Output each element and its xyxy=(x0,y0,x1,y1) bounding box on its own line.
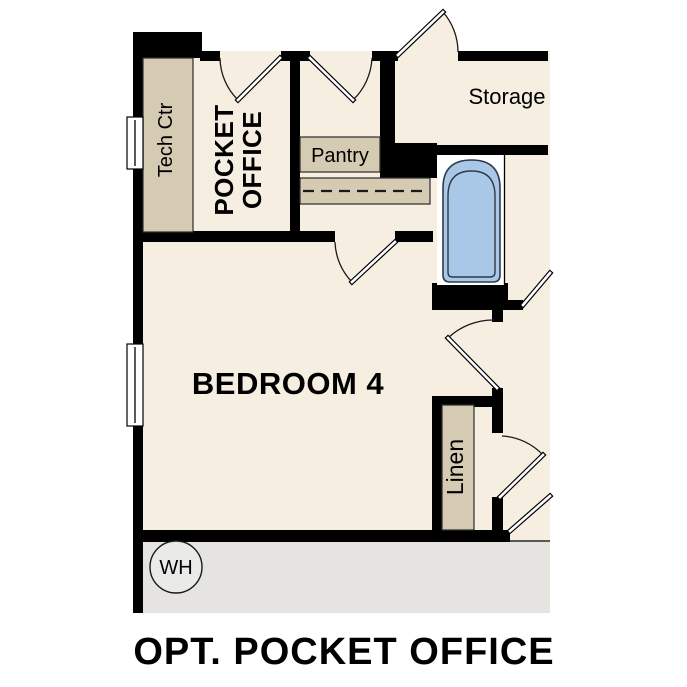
storage-label: Storage xyxy=(468,84,545,109)
wall-tub-bottom-block xyxy=(432,283,508,310)
water-heater-label: WH xyxy=(159,557,192,579)
wall-hall-stub-c xyxy=(492,497,503,530)
bedroom-label: BEDROOM 4 xyxy=(192,366,385,401)
pocket-office-label-line2: OFFICE xyxy=(237,111,267,209)
garage-floor xyxy=(143,542,550,613)
wall-office-closet-divider xyxy=(290,51,300,242)
wall-mid-block xyxy=(380,143,437,178)
wall-top-left-block xyxy=(133,32,202,58)
wall-bedroom-bottom xyxy=(133,530,510,542)
wall-bath-top xyxy=(433,145,548,155)
plan-caption: OPT. POCKET OFFICE xyxy=(133,631,554,673)
wall-bath-door-step xyxy=(497,300,523,310)
wall-hall-stub-b xyxy=(492,388,503,433)
pocket-office-label-line1: POCKET xyxy=(209,104,239,215)
wall-linen-left xyxy=(432,396,442,542)
linen-label: Linen xyxy=(442,439,468,495)
bathtub-icon xyxy=(443,160,500,282)
floor-plan-drawing: Tech Ctr POCKET OFFICE Pantry Storage BE… xyxy=(0,0,687,687)
wall-top-seg-a xyxy=(200,51,220,61)
pantry-label: Pantry xyxy=(311,145,369,167)
tech-ctr-label: Tech Ctr xyxy=(155,102,177,177)
wall-bedroom-top-a xyxy=(133,231,335,242)
wall-pantry-storage-divider xyxy=(380,51,395,143)
wall-bedroom-top-b xyxy=(395,231,433,242)
wall-top-storage xyxy=(458,51,548,61)
floor-plan-page: Tech Ctr POCKET OFFICE Pantry Storage BE… xyxy=(0,0,687,687)
